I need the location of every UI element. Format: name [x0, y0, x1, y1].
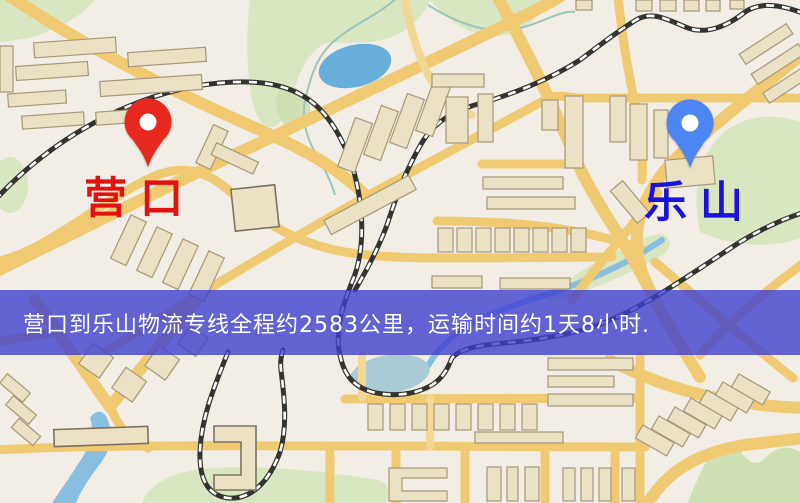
destination-label: 乐山	[644, 182, 756, 225]
route-info-banner: 营口到乐山物流专线全程约2583公里，运输时间约1天8小时.	[0, 290, 800, 355]
origin-label: 营口	[84, 178, 196, 221]
route-info-text: 营口到乐山物流专线全程约2583公里，运输时间约1天8小时.	[23, 307, 650, 339]
map-canvas	[0, 0, 800, 503]
map-image: 营口 乐山 营口到乐山物流专线全程约2583公里，运输时间约1天8小时.	[0, 0, 800, 503]
